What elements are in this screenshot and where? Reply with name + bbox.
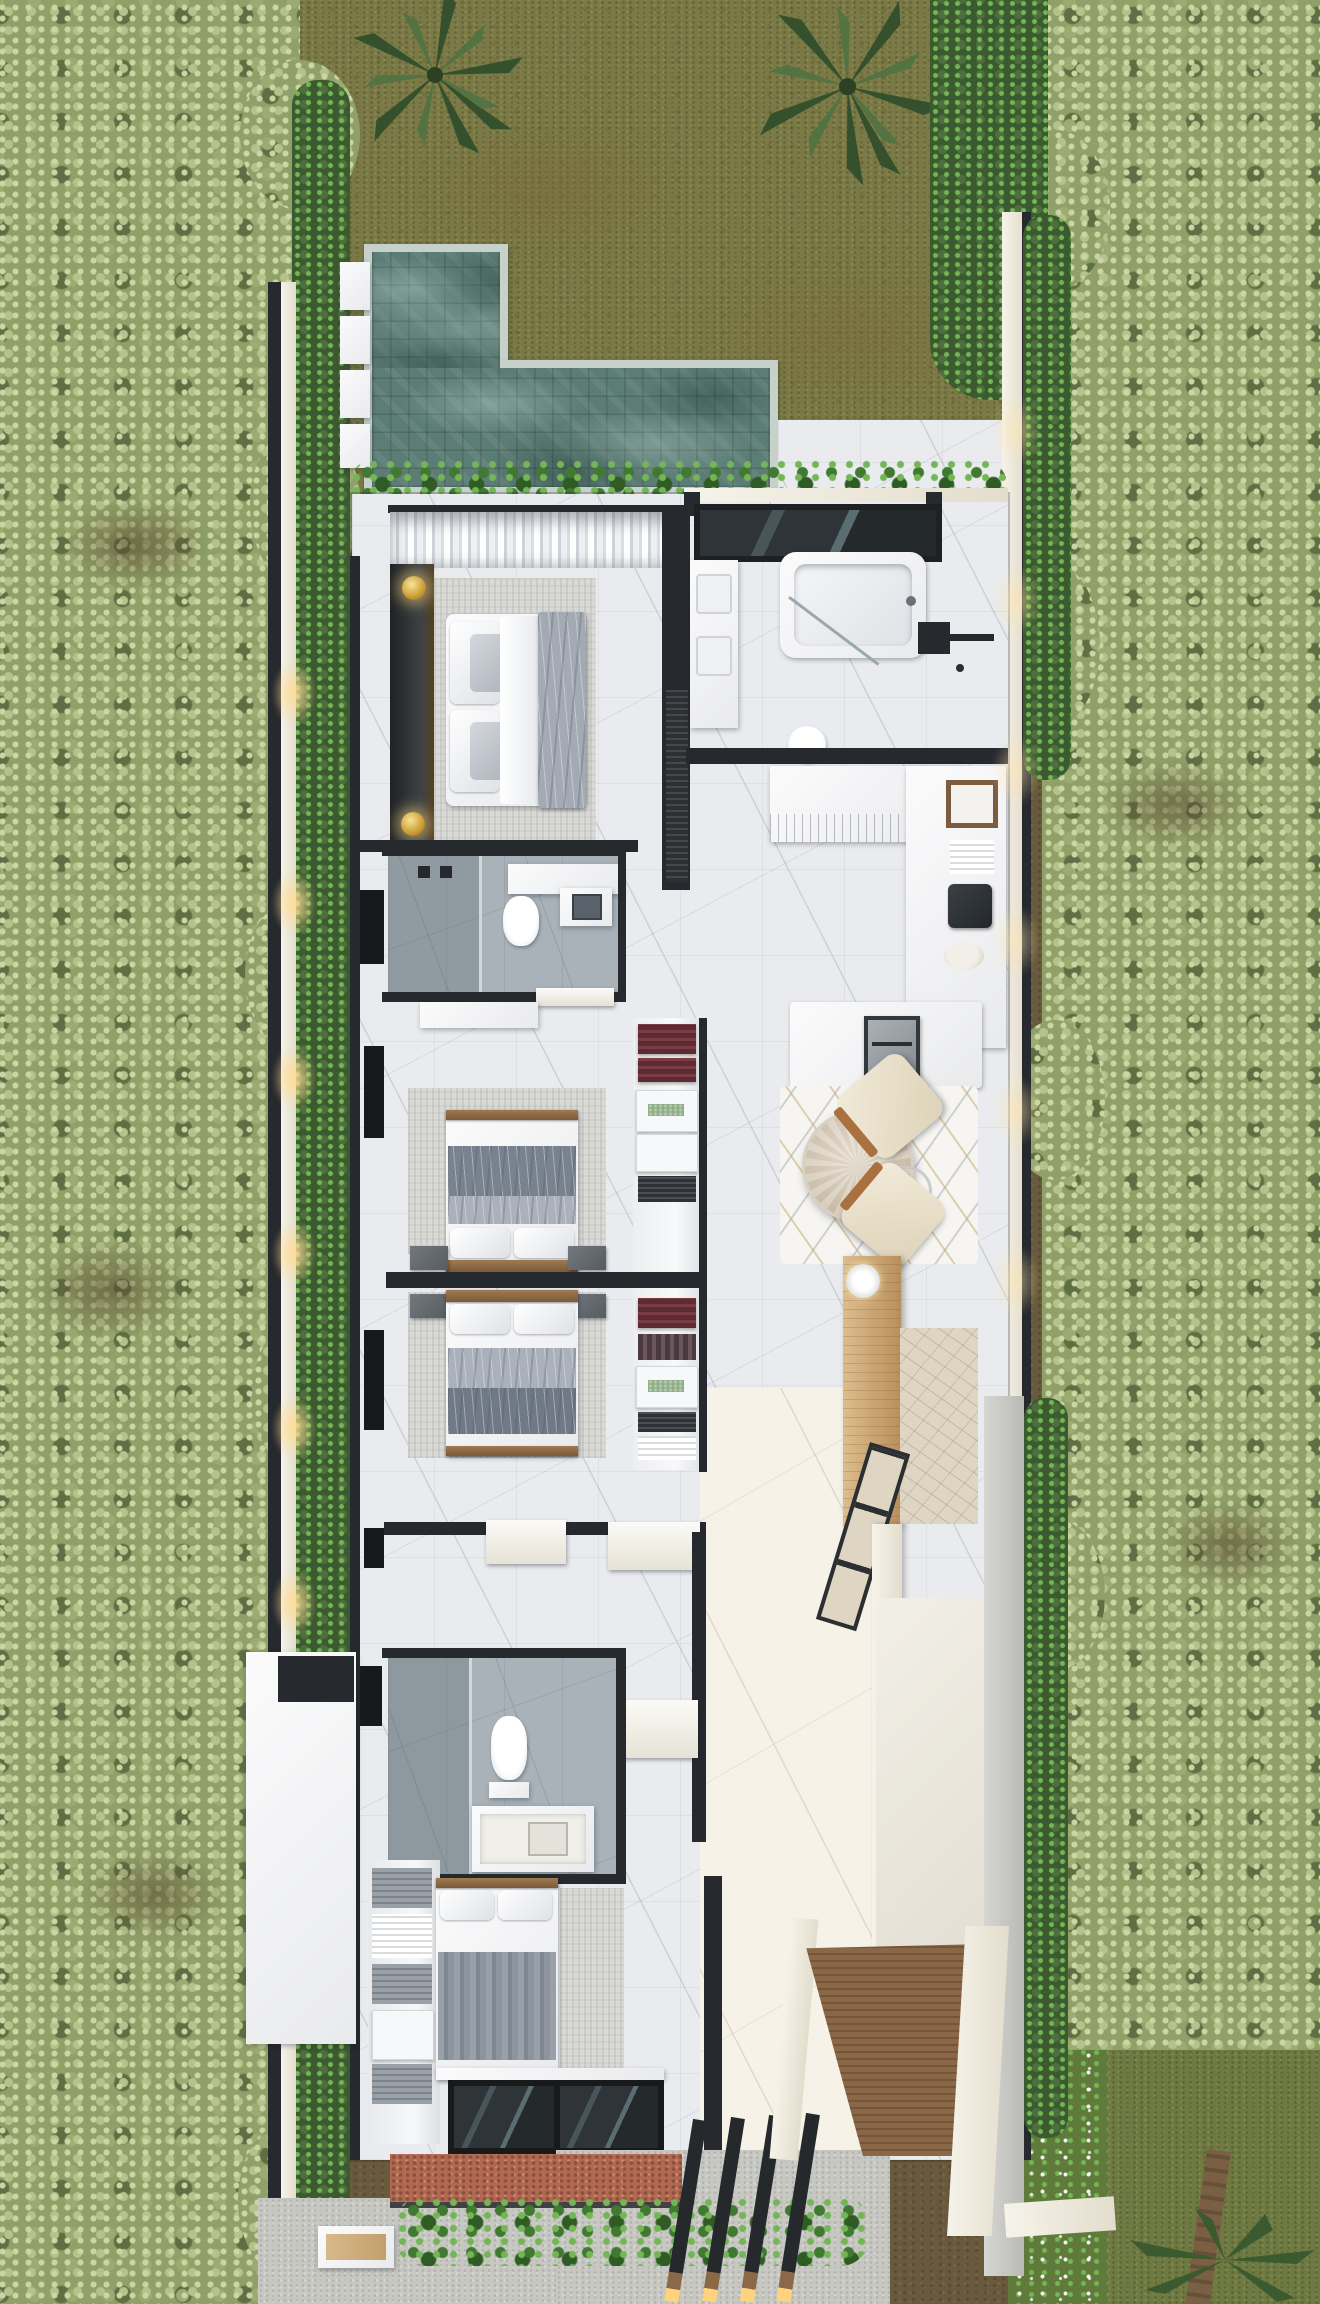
palm-tree-icon	[340, 0, 530, 195]
uplight	[272, 660, 316, 726]
hedge-east-wall	[1023, 215, 1071, 780]
wall-light	[992, 735, 1040, 807]
house-wall-west	[350, 556, 360, 2160]
wall-light	[992, 905, 1040, 977]
ac-unit	[364, 1528, 384, 1568]
wall-light	[992, 1245, 1040, 1317]
boundary-walkway-west	[281, 282, 296, 2304]
pocket-door	[486, 1520, 566, 1564]
entry-gallery	[700, 1388, 874, 2156]
bedroom-divider-wall	[386, 1272, 706, 1288]
uplight	[272, 1395, 316, 1461]
ac-unit	[364, 1046, 384, 1138]
ac-unit	[360, 890, 384, 964]
wall-light	[992, 565, 1040, 637]
hall-east-wall	[692, 1532, 706, 1842]
pocket-door	[608, 1522, 700, 1570]
uplight	[272, 870, 316, 936]
uplight	[272, 1570, 316, 1636]
pocket-door	[614, 1700, 698, 1758]
uplight	[272, 1220, 316, 1286]
wall-light	[992, 1075, 1040, 1147]
hedge-left-strip	[292, 80, 350, 2225]
garden-wall-east-low	[984, 1396, 1024, 2276]
palm-tree-icon	[745, 0, 950, 215]
ac-unit	[360, 1666, 382, 1726]
wall-light	[992, 395, 1040, 467]
uplight	[272, 1045, 316, 1111]
house-floor	[352, 494, 1008, 2160]
hedge-east-low	[1024, 1398, 1068, 2138]
boundary-wall-west	[268, 282, 281, 2304]
ac-unit	[364, 1330, 384, 1430]
aerial-villa-render: Top-down 3D render of a tropical villa f…	[0, 0, 1320, 2304]
